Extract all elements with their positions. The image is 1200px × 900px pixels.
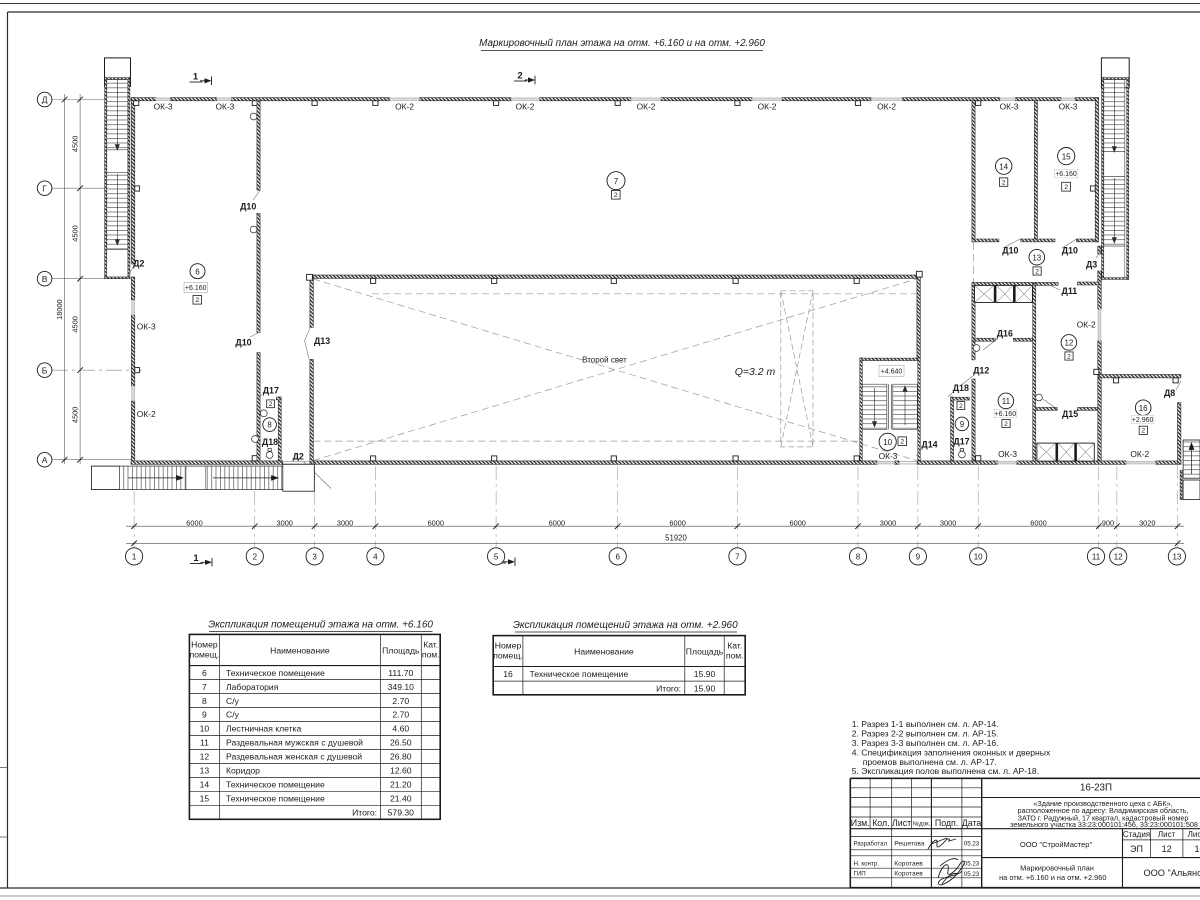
svg-text:1: 1 — [193, 72, 199, 83]
svg-text:В: В — [42, 274, 48, 284]
svg-text:13: 13 — [1032, 253, 1041, 262]
svg-text:помещ.: помещ. — [190, 650, 220, 660]
svg-text:Кат.: Кат. — [423, 640, 438, 650]
svg-text:+6.160: +6.160 — [185, 285, 207, 292]
svg-text:2: 2 — [195, 297, 199, 304]
svg-text:ООО "Альянс: ООО "Альянс — [1144, 868, 1200, 878]
svg-text:2: 2 — [1141, 428, 1145, 435]
svg-text:Решетова: Решетова — [894, 840, 925, 847]
svg-text:Площадь: Площадь — [686, 647, 724, 657]
svg-text:349.10: 349.10 — [388, 682, 415, 692]
svg-text:помещ.: помещ. — [493, 651, 523, 661]
svg-text:ОК-3: ОК-3 — [1059, 101, 1078, 111]
svg-text:ОК-2: ОК-2 — [1077, 320, 1096, 330]
svg-text:6000: 6000 — [549, 518, 565, 527]
svg-text:8: 8 — [267, 421, 271, 430]
svg-text:Разработал: Разработал — [854, 840, 888, 847]
svg-text:ЭП: ЭП — [1130, 844, 1143, 854]
svg-text:ООО "СтройМастер": ООО "СтройМастер" — [1020, 840, 1093, 849]
svg-text:579.30: 579.30 — [388, 807, 415, 817]
svg-text:6000: 6000 — [789, 518, 805, 527]
svg-text:Раздевальная мужская с душевой: Раздевальная мужская с душевой — [226, 738, 363, 748]
svg-text:С/у: С/у — [226, 696, 240, 706]
svg-text:11: 11 — [1092, 552, 1101, 561]
svg-text:ОК-2: ОК-2 — [137, 409, 156, 419]
svg-text:2: 2 — [1035, 268, 1039, 275]
svg-text:Маркировочный план: Маркировочный план — [1020, 863, 1094, 872]
svg-text:16-23П: 16-23П — [1080, 783, 1112, 794]
svg-text:9: 9 — [960, 420, 964, 429]
svg-text:26.50: 26.50 — [390, 738, 412, 748]
svg-text:6: 6 — [202, 668, 207, 678]
svg-text:Д10: Д10 — [235, 338, 251, 348]
svg-text:Коротаев: Коротаев — [894, 860, 923, 867]
svg-text:А: А — [42, 455, 48, 465]
svg-text:Наименование: Наименование — [270, 646, 330, 656]
svg-text:ГИП: ГИП — [854, 871, 866, 878]
svg-text:Коротаев: Коротаев — [894, 871, 923, 878]
svg-text:ОК-2: ОК-2 — [637, 101, 656, 111]
svg-text:Раздевальная женская с душевой: Раздевальная женская с душевой — [226, 752, 362, 762]
svg-text:Д17: Д17 — [263, 385, 279, 395]
svg-text:2: 2 — [1004, 421, 1008, 428]
svg-text:Техническое помещение: Техническое помещение — [226, 668, 325, 678]
svg-text:Техническое помещение: Техническое помещение — [530, 669, 629, 679]
svg-text:Итого:: Итого: — [352, 807, 377, 817]
svg-text:Д2: Д2 — [293, 451, 304, 461]
svg-text:2: 2 — [269, 401, 273, 408]
svg-text:2: 2 — [959, 403, 963, 410]
svg-text:Д: Д — [42, 95, 48, 105]
svg-text:Д18: Д18 — [262, 437, 278, 447]
svg-text:51920: 51920 — [665, 534, 687, 543]
svg-text:4500: 4500 — [71, 316, 80, 332]
svg-text:Экспликация помещений этажа на: Экспликация помещений этажа на отм. +6.1… — [208, 620, 433, 631]
svg-text:11: 11 — [1002, 397, 1011, 406]
svg-text:18000: 18000 — [55, 299, 64, 320]
svg-text:2: 2 — [900, 439, 904, 446]
svg-text:21.20: 21.20 — [390, 780, 412, 790]
svg-text:ОК-3: ОК-3 — [879, 451, 898, 461]
svg-text:15.90: 15.90 — [694, 669, 716, 679]
svg-text:Д14: Д14 — [921, 440, 937, 450]
svg-text:6000: 6000 — [1030, 518, 1046, 527]
svg-text:ОК-3: ОК-3 — [215, 101, 234, 111]
svg-text:15: 15 — [200, 794, 210, 804]
svg-text:+4.640: +4.640 — [881, 368, 903, 375]
svg-text:12: 12 — [1114, 552, 1123, 561]
svg-text:Д8: Д8 — [1164, 388, 1175, 398]
svg-text:4500: 4500 — [71, 225, 80, 241]
svg-text:12.60: 12.60 — [390, 766, 412, 776]
svg-text:Н. контр.: Н. контр. — [854, 860, 880, 867]
svg-text:3000: 3000 — [940, 518, 956, 527]
svg-text:4: 4 — [373, 552, 378, 561]
svg-text:Б: Б — [42, 365, 48, 375]
svg-text:900: 900 — [1102, 518, 1114, 527]
svg-text:15.90: 15.90 — [694, 683, 716, 693]
svg-text:1: 1 — [193, 553, 199, 564]
svg-text:Стадия: Стадия — [1123, 830, 1150, 839]
svg-text:Лис: Лис — [1188, 830, 1200, 839]
svg-text:8: 8 — [856, 552, 861, 561]
svg-text:6: 6 — [195, 267, 200, 276]
svg-text:Экспликация помещений этажа на: Экспликация помещений этажа на отм. +2.9… — [513, 620, 738, 631]
svg-text:Д17: Д17 — [953, 437, 969, 447]
svg-text:2: 2 — [253, 552, 258, 561]
svg-text:Лаборатория: Лаборатория — [226, 682, 279, 692]
svg-text:9: 9 — [916, 552, 921, 561]
svg-text:10: 10 — [883, 438, 892, 447]
svg-text:2: 2 — [1002, 180, 1006, 187]
svg-text:111.70: 111.70 — [388, 668, 413, 678]
svg-text:2: 2 — [517, 71, 522, 82]
svg-text:Подп.: Подп. — [935, 818, 958, 828]
svg-text:ОК-3: ОК-3 — [998, 449, 1017, 459]
svg-text:9: 9 — [202, 710, 207, 720]
svg-text:6000: 6000 — [186, 518, 202, 527]
svg-text:Кат.: Кат. — [727, 641, 742, 651]
svg-text:Техническое помещение: Техническое помещение — [226, 794, 325, 804]
svg-text:Q=3.2 т: Q=3.2 т — [735, 366, 776, 378]
svg-text:Д10: Д10 — [240, 202, 256, 212]
svg-text:16: 16 — [503, 669, 513, 679]
svg-text:+6.160: +6.160 — [994, 411, 1016, 418]
svg-text:05.23: 05.23 — [964, 871, 980, 878]
svg-text:3000: 3000 — [337, 518, 353, 527]
svg-text:1: 1 — [132, 552, 137, 561]
svg-text:3: 3 — [312, 552, 317, 561]
svg-text:11: 11 — [200, 738, 209, 748]
svg-text:Номер: Номер — [495, 641, 522, 651]
svg-text:16: 16 — [1139, 404, 1148, 413]
svg-text:Д13: Д13 — [314, 336, 330, 346]
svg-text:6000: 6000 — [428, 518, 444, 527]
svg-text:№док.: №док. — [913, 821, 931, 828]
svg-text:пом.: пом. — [422, 650, 440, 660]
svg-text:8: 8 — [202, 696, 207, 706]
svg-text:Дата: Дата — [962, 818, 982, 828]
svg-text:5. Экспликация полов выполнена: 5. Экспликация полов выполнена см. л. АР… — [852, 766, 1039, 776]
svg-text:2.70: 2.70 — [392, 696, 409, 706]
svg-text:13: 13 — [1172, 552, 1181, 561]
svg-text:3000: 3000 — [880, 518, 896, 527]
svg-text:6000: 6000 — [669, 518, 685, 527]
svg-text:Итого:: Итого: — [656, 683, 681, 693]
svg-text:1: 1 — [1194, 844, 1199, 854]
svg-text:05.23: 05.23 — [964, 841, 980, 848]
svg-text:на отм. +6.160 и на отм. +2.96: на отм. +6.160 и на отм. +2.960 — [999, 873, 1106, 882]
svg-text:Лестничная клетка: Лестничная клетка — [226, 724, 301, 734]
svg-text:4500: 4500 — [71, 136, 80, 152]
svg-text:пом.: пом. — [726, 651, 744, 661]
svg-text:земельного участка 33:23:00010: земельного участка 33:23:000101:456, 33:… — [1010, 820, 1198, 829]
svg-text:7: 7 — [735, 552, 740, 561]
svg-text:Г: Г — [42, 183, 47, 193]
svg-text:Площадь: Площадь — [382, 646, 420, 656]
svg-text:Д12: Д12 — [973, 366, 989, 376]
svg-text:2: 2 — [1064, 184, 1068, 191]
svg-text:ОК-3: ОК-3 — [137, 322, 156, 332]
svg-text:12: 12 — [1064, 339, 1073, 348]
svg-text:7: 7 — [202, 682, 207, 692]
svg-text:13: 13 — [200, 766, 210, 776]
svg-text:Д10: Д10 — [1062, 246, 1078, 256]
svg-text:Техническое помещение: Техническое помещение — [226, 780, 325, 790]
svg-text:15: 15 — [1062, 152, 1071, 161]
svg-text:ОК-2: ОК-2 — [516, 101, 535, 111]
svg-text:ОК-3: ОК-3 — [154, 101, 173, 111]
svg-text:21.40: 21.40 — [390, 794, 412, 804]
svg-text:6: 6 — [615, 552, 620, 561]
svg-text:ОК-3: ОК-3 — [1000, 101, 1019, 111]
svg-text:Д15: Д15 — [1062, 409, 1078, 419]
svg-text:Коридор: Коридор — [226, 766, 260, 776]
svg-text:Изм.: Изм. — [851, 818, 870, 828]
svg-text:Д16: Д16 — [997, 329, 1013, 339]
svg-text:ОК-2: ОК-2 — [877, 101, 896, 111]
svg-text:2.70: 2.70 — [392, 710, 409, 720]
svg-text:2: 2 — [614, 192, 618, 199]
svg-text:+6.160: +6.160 — [1055, 171, 1077, 178]
svg-text:10: 10 — [200, 724, 210, 734]
svg-text:Д11: Д11 — [1062, 286, 1078, 296]
svg-text:5: 5 — [494, 552, 499, 561]
svg-text:С/у: С/у — [226, 710, 240, 720]
svg-text:Наименование: Наименование — [574, 647, 634, 657]
svg-text:Маркировочный план этажа на от: Маркировочный план этажа на отм. +6.160 … — [479, 38, 765, 49]
svg-text:Лист: Лист — [1158, 830, 1176, 839]
svg-text:ОК-2: ОК-2 — [1130, 449, 1149, 459]
svg-text:4.60: 4.60 — [392, 724, 409, 734]
svg-text:12: 12 — [1162, 844, 1172, 854]
svg-text:Д3: Д3 — [1086, 260, 1097, 270]
svg-text:Лист: Лист — [892, 818, 911, 828]
svg-text:3020: 3020 — [1139, 518, 1155, 527]
svg-text:2: 2 — [1067, 353, 1071, 360]
svg-text:ОК-2: ОК-2 — [395, 101, 414, 111]
svg-text:14: 14 — [200, 780, 210, 790]
svg-text:10: 10 — [974, 552, 983, 561]
svg-text:ОК-2: ОК-2 — [758, 101, 777, 111]
svg-text:4500: 4500 — [71, 407, 80, 423]
svg-text:Номер: Номер — [191, 640, 218, 650]
svg-text:Д2: Д2 — [133, 259, 144, 269]
svg-text:12: 12 — [200, 752, 210, 762]
svg-text:7: 7 — [614, 177, 619, 186]
svg-text:Кол.: Кол. — [872, 818, 889, 828]
svg-text:14: 14 — [999, 162, 1008, 171]
svg-text:Второй свет: Второй свет — [582, 355, 627, 364]
svg-text:Д18: Д18 — [953, 383, 969, 393]
svg-text:26.80: 26.80 — [390, 752, 412, 762]
svg-text:+2.960: +2.960 — [1132, 417, 1154, 424]
svg-text:3000: 3000 — [276, 518, 292, 527]
svg-text:05.23: 05.23 — [964, 861, 980, 868]
